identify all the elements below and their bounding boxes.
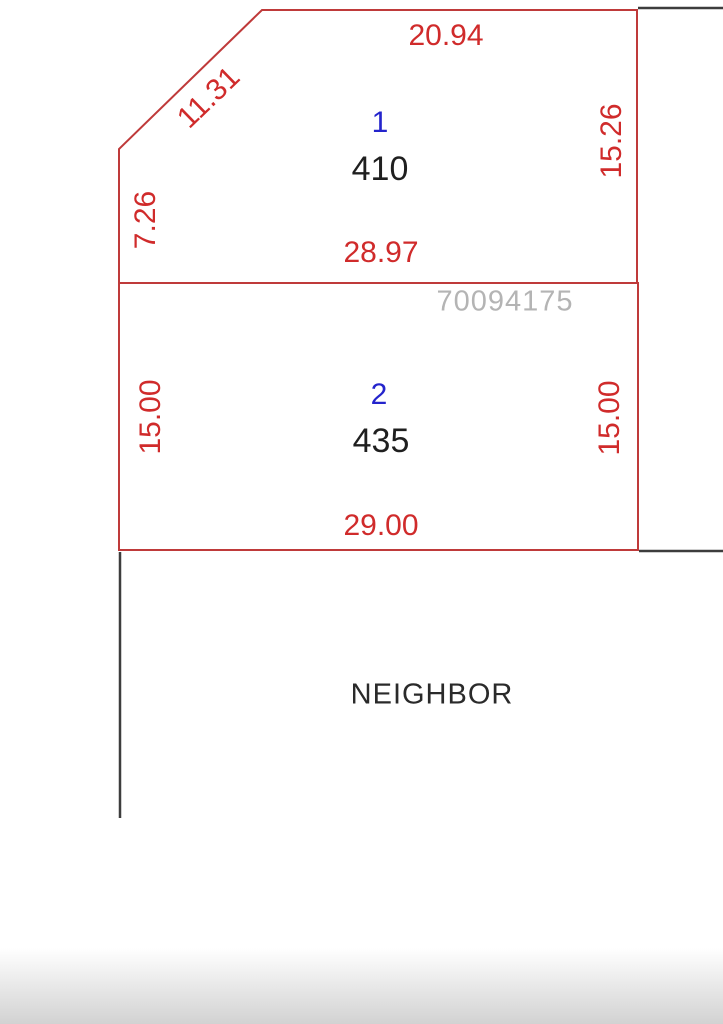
plat-diagram: 20.94 11.31 15.26 7.26 28.97 1 410 70094… [0, 0, 723, 1024]
lot1-area: 410 [352, 152, 409, 186]
lot2-dim-bottom: 29.00 [343, 511, 418, 541]
lot1-dim-diagonal: 11.31 [172, 62, 245, 134]
lot1-dim-top: 20.94 [408, 21, 483, 51]
lot2-number: 2 [371, 380, 388, 410]
lot2-area: 435 [353, 424, 410, 458]
parcel-id: 70094175 [436, 288, 573, 317]
lot1-dim-right: 15.26 [597, 103, 627, 178]
lot1-number: 1 [372, 108, 389, 138]
lot2-dim-right: 15.00 [595, 380, 625, 455]
lot2-dim-left: 15.00 [136, 379, 166, 454]
page-bottom-fade [0, 948, 723, 1024]
lot1-dim-left: 7.26 [131, 191, 161, 249]
lot1-dim-bottom: 28.97 [343, 238, 418, 268]
neighbor-label: NEIGHBOR [351, 681, 514, 710]
